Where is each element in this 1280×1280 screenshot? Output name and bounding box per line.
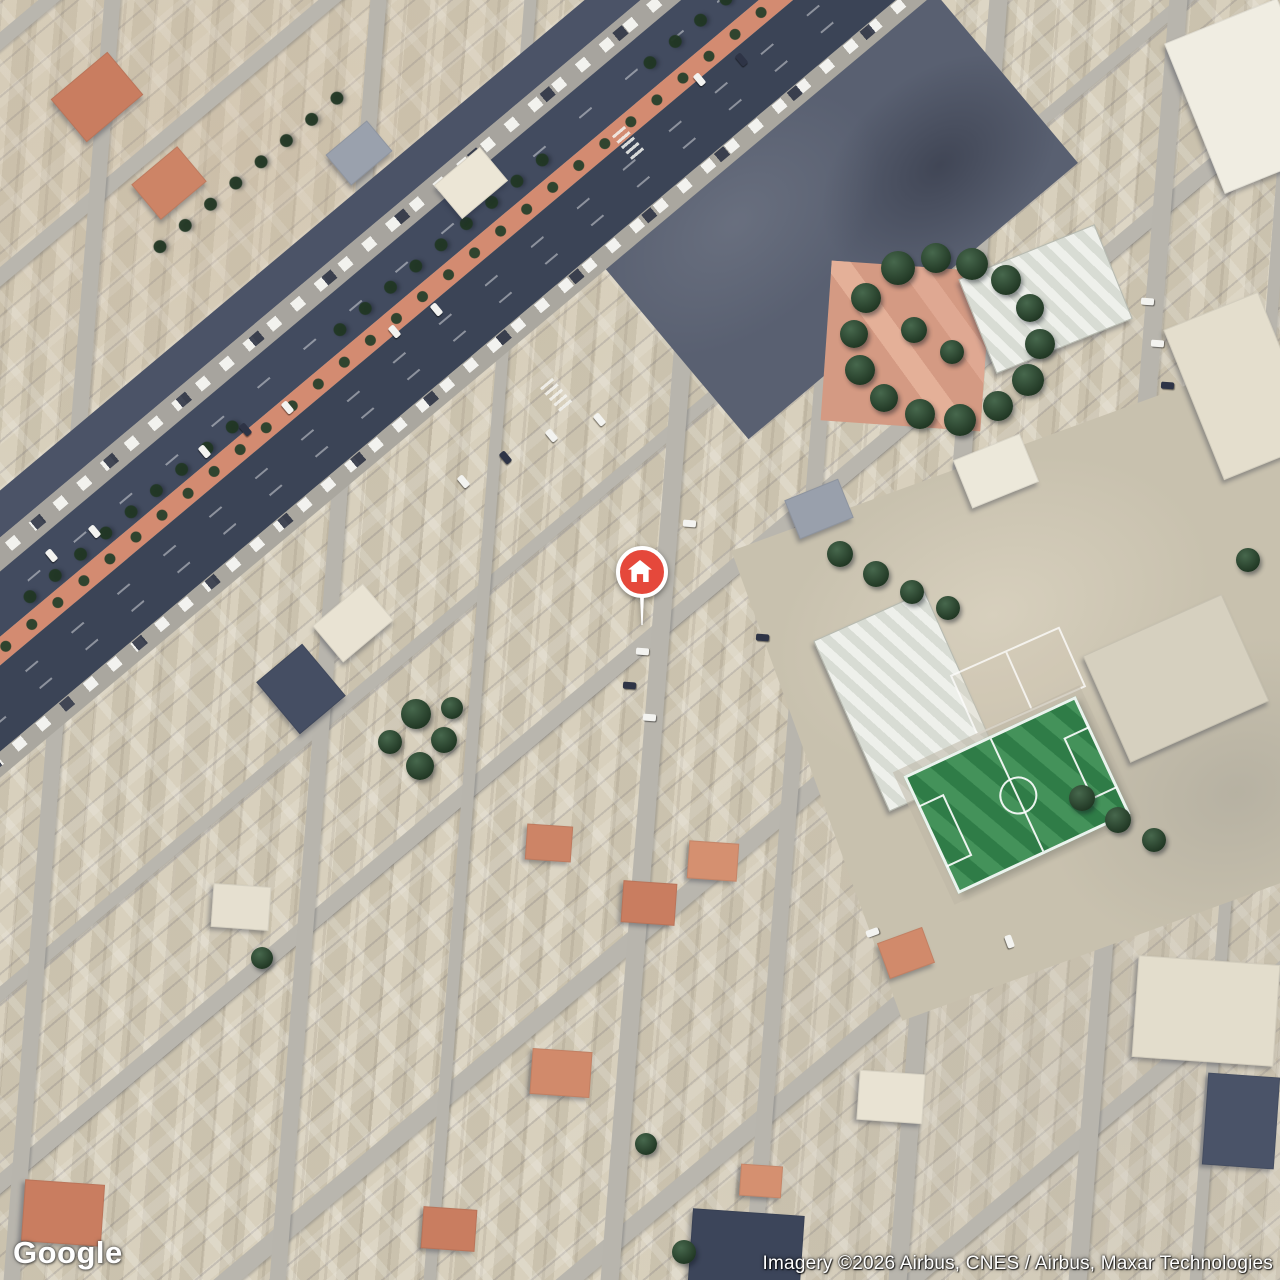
tree	[991, 265, 1021, 295]
tree	[905, 399, 935, 429]
tree	[901, 317, 927, 343]
tree	[672, 1240, 696, 1264]
car	[1151, 340, 1164, 348]
building-roof	[421, 1206, 478, 1252]
car	[683, 520, 696, 528]
tree	[1142, 828, 1166, 852]
tree	[441, 697, 463, 719]
tree	[1025, 329, 1055, 359]
car	[1141, 298, 1154, 306]
imagery-attribution: Imagery ©2026 Airbus, CNES / Airbus, Max…	[763, 1253, 1273, 1275]
field-center-circle	[993, 770, 1043, 820]
car	[756, 634, 769, 642]
home-place-marker[interactable]	[614, 546, 670, 632]
building-roof	[1132, 955, 1280, 1067]
building-roof	[525, 823, 573, 862]
building-roof	[687, 840, 740, 881]
car	[636, 648, 649, 656]
building-roof	[211, 883, 272, 931]
tree	[1105, 807, 1131, 833]
tree	[936, 596, 960, 620]
building-roof	[529, 1048, 592, 1098]
tree	[401, 699, 431, 729]
building-roof	[621, 880, 678, 926]
tree	[431, 727, 457, 753]
tree	[845, 355, 875, 385]
google-logo[interactable]: Google	[13, 1235, 123, 1271]
tree	[827, 541, 853, 567]
tree	[1016, 294, 1044, 322]
tree	[1012, 364, 1044, 396]
tree	[944, 404, 976, 436]
tree	[983, 391, 1013, 421]
tree	[406, 752, 434, 780]
car	[643, 714, 656, 722]
building-roof	[1202, 1073, 1280, 1170]
tree	[921, 243, 951, 273]
tree	[851, 283, 881, 313]
building-roof	[856, 1070, 925, 1124]
tree	[635, 1133, 657, 1155]
tree	[863, 561, 889, 587]
car	[1161, 382, 1174, 390]
tree	[1069, 785, 1095, 811]
tree	[900, 580, 924, 604]
tree	[940, 340, 964, 364]
tree	[840, 320, 868, 348]
tree	[956, 248, 988, 280]
tree	[881, 251, 915, 285]
satellite-map-canvas[interactable]: Google Imagery ©2026 Airbus, CNES / Airb…	[0, 0, 1280, 1280]
car	[623, 682, 636, 690]
tree	[378, 730, 402, 754]
tree	[870, 384, 898, 412]
tree	[1236, 548, 1260, 572]
building-roof	[739, 1164, 783, 1199]
marker-stem	[638, 597, 646, 625]
tree	[251, 947, 273, 969]
